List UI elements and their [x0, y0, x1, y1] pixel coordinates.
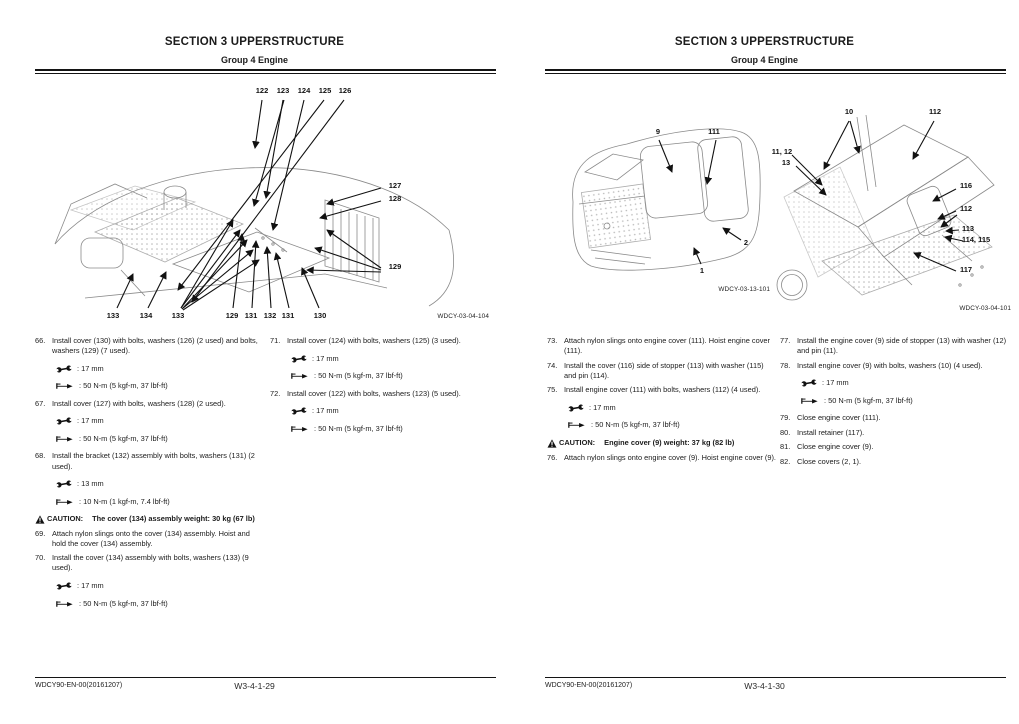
step-text: Install the cover (134) assembly with bo… — [52, 553, 264, 573]
torque-wrench-icon — [56, 382, 74, 390]
page-subtitle: Group 4 Engine — [510, 55, 1019, 65]
figure-callout: 9 — [656, 127, 660, 136]
figure-callout: 117 — [960, 265, 972, 274]
figure-callout: 112 — [960, 204, 972, 213]
wrench-icon — [56, 417, 72, 425]
torque-wrench-icon — [56, 498, 74, 506]
text-column: 73.Attach nylon slings onto engine cover… — [547, 336, 776, 467]
figure-callout: 11, 12 — [772, 147, 792, 156]
tool-spec-line: : 17 mm — [801, 378, 1009, 388]
warning-triangle-icon — [35, 515, 45, 527]
figure-callout: 113 — [962, 224, 974, 233]
header-rule — [545, 69, 1006, 74]
figure-callout: 122 — [256, 86, 269, 95]
torque-wrench-icon — [56, 435, 74, 443]
procedure-step: 68.Install the bracket (132) assembly wi… — [35, 451, 264, 471]
step-text: Install engine cover (9) with bolts, was… — [797, 361, 1009, 371]
figure-callout: 128 — [389, 194, 402, 203]
step-text: Close engine cover (9). — [797, 442, 1009, 452]
tool-spec-line: : 13 mm — [56, 479, 264, 489]
caution-note: CAUTION:Engine cover (9) weight: 37 kg (… — [547, 438, 776, 448]
tool-spec-line: : 17 mm — [291, 354, 499, 364]
step-text: Install retainer (117). — [797, 428, 1009, 438]
procedure-step: 81.Close engine cover (9). — [780, 442, 1009, 452]
step-number: 67. — [35, 399, 52, 409]
tool-spec-text: : 50 N-m (5 kgf-m, 37 lbf-ft) — [79, 599, 168, 609]
caution-text: CAUTION:The cover (134) assembly weight:… — [47, 514, 255, 523]
footer-page-number: W3-4-1-30 — [510, 681, 1019, 691]
step-number: 73. — [547, 336, 564, 356]
procedure-step: 78.Install engine cover (9) with bolts, … — [780, 361, 1009, 371]
wrench-icon — [56, 582, 72, 590]
figure-callout: 132 — [264, 311, 277, 320]
procedure-step: 67.Install cover (127) with bolts, washe… — [35, 399, 264, 409]
tool-spec-line: : 50 N-m (5 kgf-m, 37 lbf-ft) — [56, 599, 264, 609]
torque-wrench-icon — [801, 397, 819, 405]
figure-illustration — [555, 100, 770, 300]
warning-triangle-icon — [547, 439, 557, 451]
figure-callout: 124 — [298, 86, 311, 95]
step-number: 79. — [780, 413, 797, 423]
figure-callout: 1 — [700, 266, 704, 275]
header-rule — [35, 69, 496, 74]
procedure-step: 76.Attach nylon slings onto engine cover… — [547, 453, 776, 463]
step-number: 75. — [547, 385, 564, 395]
step-text: Install the bracket (132) assembly with … — [52, 451, 264, 471]
tool-spec-line: : 50 N-m (5 kgf-m, 37 lbf-ft) — [291, 371, 499, 381]
figure-callout: 111 — [708, 127, 720, 136]
step-number: 66. — [35, 336, 52, 356]
figure-callout: 10 — [845, 107, 853, 116]
wrench-icon — [56, 480, 72, 488]
tool-spec-text: : 17 mm — [312, 406, 339, 416]
step-number: 68. — [35, 451, 52, 471]
text-column: 71.Install cover (124) with bolts, washe… — [270, 336, 499, 441]
tool-spec-text: : 50 N-m (5 kgf-m, 37 lbf-ft) — [79, 381, 168, 391]
caution-text: CAUTION:Engine cover (9) weight: 37 kg (… — [559, 438, 734, 447]
tool-spec-line: : 17 mm — [56, 364, 264, 374]
figure-callout: 114, 115 — [962, 235, 990, 244]
tool-spec-text: : 50 N-m (5 kgf-m, 37 lbf-ft) — [591, 420, 680, 430]
caution-label: CAUTION: — [559, 438, 595, 447]
step-text: Install cover (124) with bolts, washers … — [287, 336, 499, 346]
step-number: 80. — [780, 428, 797, 438]
step-number: 81. — [780, 442, 797, 452]
tool-spec-text: : 50 N-m (5 kgf-m, 37 lbf-ft) — [314, 424, 403, 434]
tool-spec-line: : 17 mm — [568, 403, 776, 413]
step-text: Attach nylon slings onto the cover (134)… — [52, 529, 264, 549]
step-text: Install engine cover (111) with bolts, w… — [564, 385, 776, 395]
figure-callout: 129 — [389, 262, 402, 271]
procedure-step: 82.Close covers (2, 1). — [780, 457, 1009, 467]
step-text: Install the engine cover (9) side of sto… — [797, 336, 1009, 356]
torque-wrench-icon — [291, 372, 309, 380]
figure-callout: 126 — [339, 86, 352, 95]
step-number: 77. — [780, 336, 797, 356]
figure-callout: 134 — [140, 311, 153, 320]
footer-page-number: W3-4-1-29 — [0, 681, 509, 691]
procedure-step: 74.Install the cover (116) side of stopp… — [547, 361, 776, 381]
tool-spec-text: : 13 mm — [77, 479, 104, 489]
figure-callout: 130 — [314, 311, 327, 320]
tool-spec-line: : 50 N-m (5 kgf-m, 37 lbf-ft) — [56, 434, 264, 444]
procedure-step: 73.Attach nylon slings onto engine cover… — [547, 336, 776, 356]
figure-callout: 131 — [245, 311, 258, 320]
step-text: Install the cover (116) side of stopper … — [564, 361, 776, 381]
wrench-icon — [56, 365, 72, 373]
figure-callout: 112 — [929, 107, 941, 116]
procedure-step: 70.Install the cover (134) assembly with… — [35, 553, 264, 573]
step-number: 78. — [780, 361, 797, 371]
wrench-icon — [291, 355, 307, 363]
figure-callout: 125 — [319, 86, 332, 95]
procedure-step: 79.Close engine cover (111). — [780, 413, 1009, 423]
tool-spec-line: : 50 N-m (5 kgf-m, 37 lbf-ft) — [801, 396, 1009, 406]
step-text: Install cover (122) with bolts, washers … — [287, 389, 499, 399]
tool-spec-text: : 17 mm — [822, 378, 849, 388]
procedure-step: 77.Install the engine cover (9) side of … — [780, 336, 1009, 356]
procedure-step: 80.Install retainer (117). — [780, 428, 1009, 438]
footer-rule — [545, 677, 1006, 678]
figure-id: WDCY-03-04-104 — [437, 313, 489, 320]
figure-callout: 133 — [107, 311, 120, 320]
step-number: 82. — [780, 457, 797, 467]
step-number: 69. — [35, 529, 52, 549]
manual-page-left: SECTION 3 UPPERSTRUCTURE Group 4 Engine — [0, 0, 509, 724]
procedure-step: 69.Attach nylon slings onto the cover (1… — [35, 529, 264, 549]
tool-spec-line: : 17 mm — [291, 406, 499, 416]
step-number: 76. — [547, 453, 564, 463]
step-text: Install cover (130) with bolts, washers … — [52, 336, 264, 356]
figure-illustration — [25, 82, 495, 328]
tool-spec-line: : 17 mm — [56, 581, 264, 591]
figure-callout: 123 — [277, 86, 290, 95]
figure-callout: 116 — [960, 181, 972, 190]
figure-callout: 131 — [282, 311, 295, 320]
step-text: Close engine cover (111). — [797, 413, 1009, 423]
step-text: Close covers (2, 1). — [797, 457, 1009, 467]
step-number: 70. — [35, 553, 52, 573]
technical-figure: WDCY-03-04-104 1221231241251261271281291… — [25, 82, 495, 328]
caution-note: CAUTION:The cover (134) assembly weight:… — [35, 514, 264, 524]
step-text: Install cover (127) with bolts, washers … — [52, 399, 264, 409]
figure-callout: 2 — [744, 238, 748, 247]
figure-id: WDCY-03-04-101 — [959, 305, 1011, 312]
tool-spec-line: : 17 mm — [56, 416, 264, 426]
tool-spec-text: : 17 mm — [77, 581, 104, 591]
tool-spec-line: : 50 N-m (5 kgf-m, 37 lbf-ft) — [56, 381, 264, 391]
step-text: Attach nylon slings onto engine cover (9… — [564, 453, 776, 463]
tool-spec-text: : 50 N-m (5 kgf-m, 37 lbf-ft) — [79, 434, 168, 444]
step-number: 72. — [270, 389, 287, 399]
figure-callout: 133 — [172, 311, 185, 320]
step-number: 71. — [270, 336, 287, 346]
wrench-icon — [568, 404, 584, 412]
tool-spec-text: : 17 mm — [312, 354, 339, 364]
text-column: 66.Install cover (130) with bolts, washe… — [35, 336, 264, 616]
caution-label: CAUTION: — [47, 514, 83, 523]
procedure-step: 75.Install engine cover (111) with bolts… — [547, 385, 776, 395]
page-title: SECTION 3 UPPERSTRUCTURE — [0, 36, 509, 48]
step-number: 74. — [547, 361, 564, 381]
procedure-step: 72.Install cover (122) with bolts, washe… — [270, 389, 499, 399]
text-column: 77.Install the engine cover (9) side of … — [780, 336, 1009, 472]
tool-spec-text: : 17 mm — [589, 403, 616, 413]
tool-spec-text: : 50 N-m (5 kgf-m, 37 lbf-ft) — [314, 371, 403, 381]
technical-figure: WDCY-03-13-101 911121 — [555, 100, 770, 300]
tool-spec-line: : 10 N-m (1 kgf-m, 7.4 lbf-ft) — [56, 497, 264, 507]
torque-wrench-icon — [568, 421, 586, 429]
torque-wrench-icon — [291, 425, 309, 433]
figure-callout: 129 — [226, 311, 239, 320]
tool-spec-text: : 50 N-m (5 kgf-m, 37 lbf-ft) — [824, 396, 913, 406]
step-text: Attach nylon slings onto engine cover (1… — [564, 336, 776, 356]
technical-figure: WDCY-03-04-101 1011211, 1213116112113114… — [762, 95, 1017, 323]
figure-callout: 13 — [782, 158, 790, 167]
torque-wrench-icon — [56, 600, 74, 608]
procedure-step: 71.Install cover (124) with bolts, washe… — [270, 336, 499, 346]
figure-callout: 127 — [389, 181, 402, 190]
tool-spec-text: : 17 mm — [77, 364, 104, 374]
page-title: SECTION 3 UPPERSTRUCTURE — [510, 36, 1019, 48]
footer-rule — [35, 677, 496, 678]
tool-spec-text: : 10 N-m (1 kgf-m, 7.4 lbf-ft) — [79, 497, 170, 507]
wrench-icon — [291, 407, 307, 415]
tool-spec-line: : 50 N-m (5 kgf-m, 37 lbf-ft) — [568, 420, 776, 430]
wrench-icon — [801, 379, 817, 387]
manual-page-right: SECTION 3 UPPERSTRUCTURE Group 4 Engine — [510, 0, 1019, 724]
procedure-step: 66.Install cover (130) with bolts, washe… — [35, 336, 264, 356]
tool-spec-line: : 50 N-m (5 kgf-m, 37 lbf-ft) — [291, 424, 499, 434]
tool-spec-text: : 17 mm — [77, 416, 104, 426]
page-subtitle: Group 4 Engine — [0, 55, 509, 65]
figure-illustration — [762, 95, 1017, 323]
